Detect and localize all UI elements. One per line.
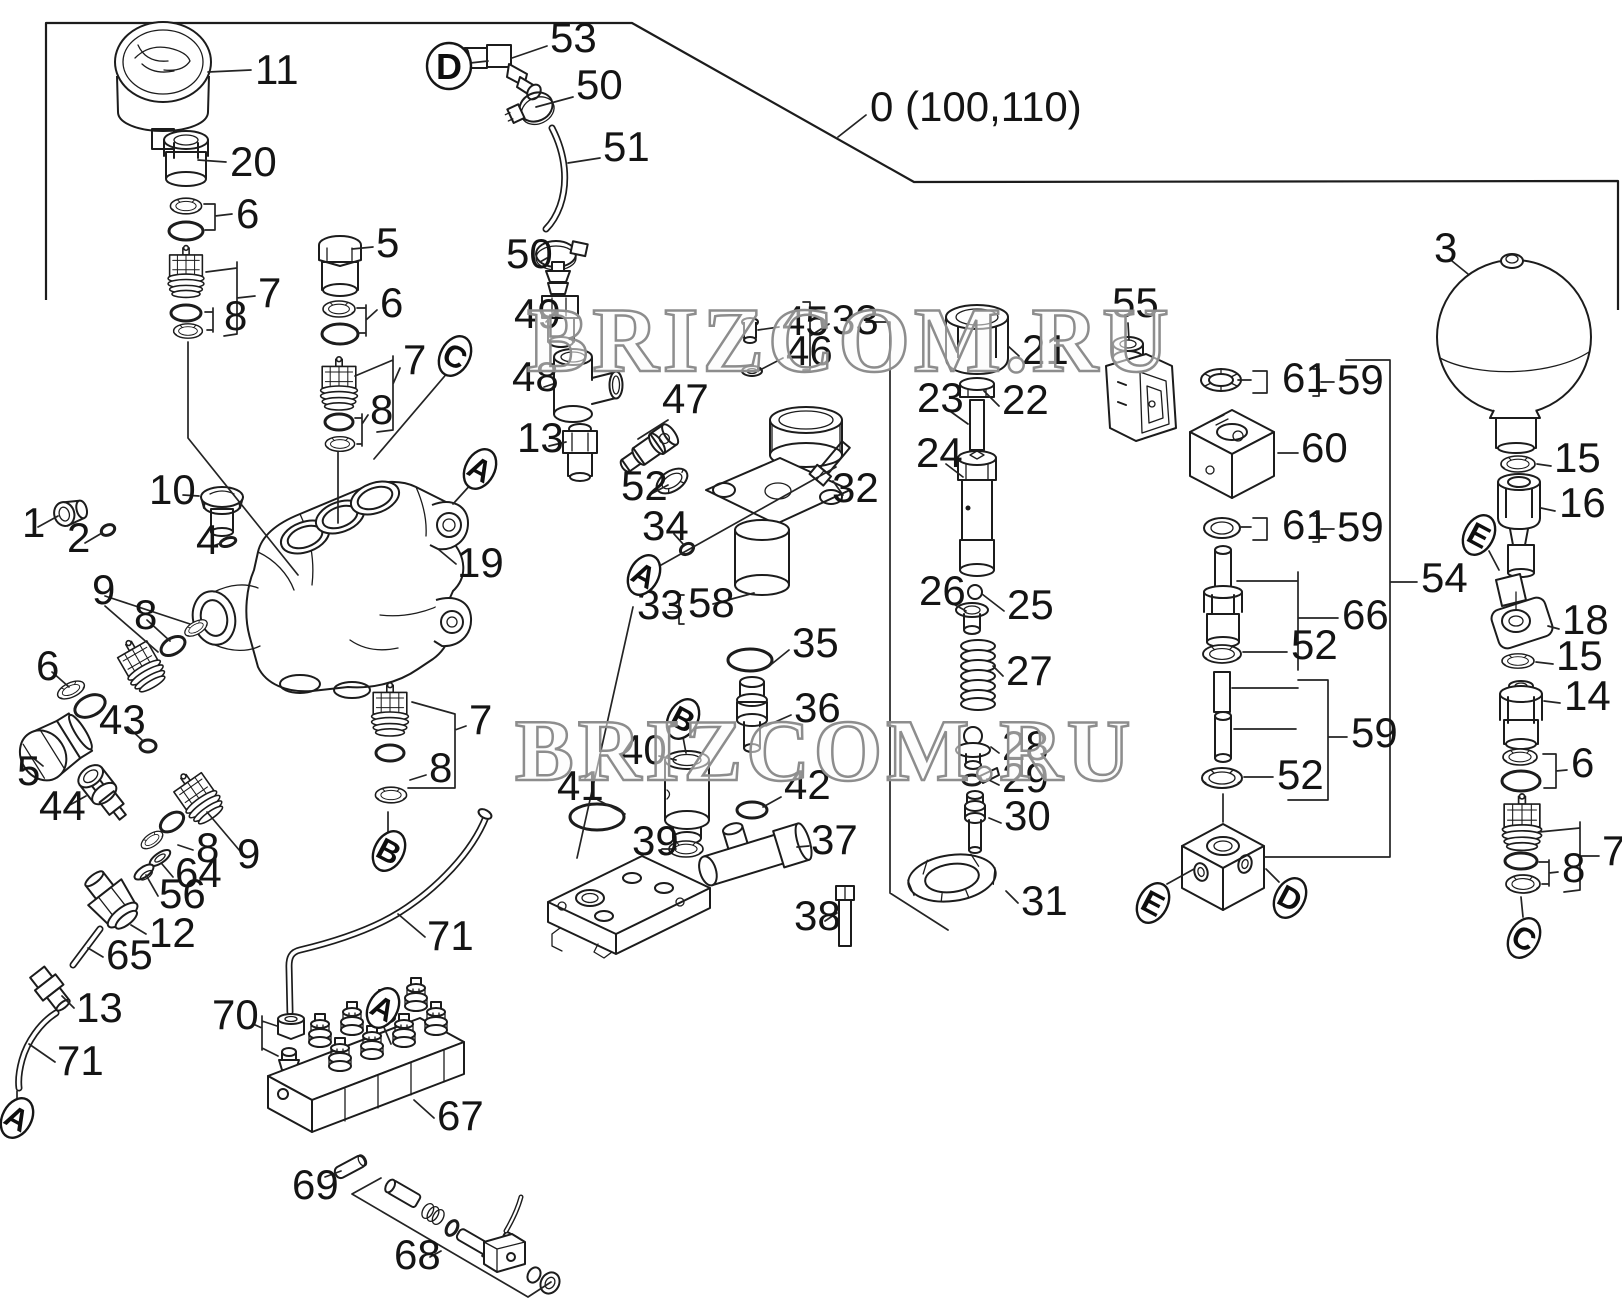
part-44-sensor-shape — [113, 807, 125, 820]
part-50-hose-clamp-shape — [571, 241, 588, 256]
part-label-71: 71 — [427, 912, 474, 959]
part-label-32: 32 — [832, 464, 879, 511]
part-3-accumulator-shape — [1490, 410, 1540, 418]
part-label-65: 65 — [106, 931, 153, 978]
part-label-67: 67 — [437, 1092, 484, 1139]
part-label-9: 9 — [92, 566, 115, 613]
watermark-layer: BRIZCOM.RUBRIZCOM.RU — [515, 289, 1173, 800]
part-35-oring — [728, 649, 772, 671]
part-19-pump-head-shape — [434, 598, 471, 646]
part-label-70: 70 — [212, 991, 259, 1038]
watermark: BRIZCOM.RU — [515, 703, 1134, 800]
part-33-threaded-port — [706, 407, 850, 524]
part-68-valve-kit-shape-shape — [484, 1234, 525, 1272]
part-label-0-100-110-: 0 (100,110) — [870, 83, 1082, 130]
part-8-washer — [1506, 875, 1540, 893]
part-33-base-plate — [548, 856, 710, 958]
exploded-parts-diagram: 0 (100,110)11206785678535051504948134752… — [0, 0, 1622, 1306]
part-7-valve — [372, 683, 409, 736]
part-67-oil-manifold-shape — [309, 1014, 331, 1047]
part-68-valve-kit-shape-shape — [425, 1205, 442, 1224]
callout-A: A — [457, 444, 502, 495]
part-label-7: 7 — [403, 336, 426, 383]
part-16-fitting-shape — [1498, 518, 1540, 529]
part-11-pressure-gauge-shape — [115, 22, 211, 102]
part-label-3: 3 — [1434, 224, 1457, 271]
part-16-fitting — [1498, 474, 1540, 529]
callout-D: D — [427, 43, 471, 89]
part-61-washer-shape — [1204, 518, 1240, 538]
part-68-valve-kit-shape — [419, 1202, 446, 1227]
part-15-washer — [1501, 456, 1535, 472]
part-6-ring — [323, 301, 355, 317]
part-9-valve — [167, 764, 228, 829]
part-label-35: 35 — [792, 619, 839, 666]
callout-A: A — [0, 1093, 40, 1144]
part-5-plug — [319, 236, 361, 296]
part-2-oring — [100, 523, 117, 538]
part-label-58: 58 — [688, 579, 735, 626]
part-8-oring — [376, 745, 404, 761]
part-70-fitting-shape — [278, 1014, 304, 1024]
part-label-16: 16 — [1559, 479, 1606, 526]
part-label-8: 8 — [224, 292, 247, 339]
part-14-fitting — [1500, 681, 1542, 749]
part-38-bolt-shape — [839, 900, 851, 946]
part-6-oring — [169, 222, 203, 240]
part-label-25: 25 — [1007, 581, 1054, 628]
part-58-cylinder — [735, 520, 789, 595]
part-stem-shape — [1510, 529, 1528, 545]
part-label-8: 8 — [134, 591, 157, 638]
part-label-10: 10 — [149, 466, 196, 513]
part-71-hose-long-shape — [477, 807, 493, 821]
part-label-52: 52 — [1291, 621, 1338, 668]
part-68-valve-kit-shape — [484, 1234, 525, 1272]
part-3-accumulator-shape — [1437, 260, 1591, 414]
watermark: BRIZCOM.RU — [527, 289, 1173, 391]
part-label-38: 38 — [794, 892, 841, 939]
part-68-valve-kit-shape-shape — [419, 1202, 436, 1221]
part-label-15: 15 — [1554, 434, 1601, 481]
part-15-washer — [1502, 654, 1534, 668]
part-30-stem — [965, 791, 985, 853]
part-27-spring — [961, 640, 995, 710]
part-9-valve — [111, 632, 169, 696]
part-label-71: 71 — [57, 1037, 104, 1084]
part-label-44: 44 — [39, 782, 86, 829]
part-14-fitting-shape — [1500, 686, 1542, 702]
part-7-valve — [168, 246, 204, 298]
part-67-oil-manifold-shape — [341, 1002, 363, 1035]
part-67-oil-manifold — [268, 978, 464, 1132]
part-label-39: 39 — [632, 817, 679, 864]
part-58-cylinder-shape — [735, 575, 789, 595]
part-67-oil-manifold-shape — [425, 1002, 447, 1035]
part-14-fitting-shape — [1506, 739, 1536, 749]
part-67-oil-manifold-shape — [361, 1026, 383, 1059]
part-3-accumulator — [1437, 254, 1591, 453]
part-30-stem-shape — [969, 820, 981, 850]
part-8-washer — [375, 787, 406, 803]
part-6-oring — [322, 324, 358, 344]
part-label-52: 52 — [1277, 751, 1324, 798]
part-label-19: 19 — [457, 539, 504, 586]
part-label-59: 59 — [1351, 709, 1398, 756]
part-label-8: 8 — [429, 744, 452, 791]
part-50-hose-clamp-shape — [517, 92, 559, 130]
part-42-oring — [737, 802, 767, 818]
part-6-ring — [1503, 749, 1537, 765]
part-53-elbow-fitting-shape — [487, 45, 511, 67]
part-59-plunger-pin — [1215, 712, 1231, 762]
part-label-68: 68 — [394, 1231, 441, 1278]
part-label-66: 66 — [1342, 591, 1389, 638]
part-label-6: 6 — [1571, 739, 1594, 786]
part-8-oring — [1505, 853, 1537, 869]
part-3-accumulator-shape — [1498, 443, 1534, 453]
part-30-stem-shape — [965, 801, 985, 811]
part-label-54: 54 — [1421, 554, 1468, 601]
part-label-43: 43 — [99, 696, 146, 743]
part-59-spring — [1214, 672, 1230, 712]
part-65-tube-shape — [73, 929, 100, 965]
callout-D: D — [1267, 873, 1312, 924]
part-5-big-plug-shape — [66, 712, 96, 751]
part-60-solenoid-coil — [1190, 410, 1274, 498]
part-36-piston-shape — [740, 677, 764, 687]
part-label-6: 6 — [36, 642, 59, 689]
part-20-fitting — [164, 131, 208, 186]
part-13-fitting — [27, 964, 75, 1015]
part-12-fitting-shape — [83, 869, 105, 889]
part-label-27: 27 — [1006, 647, 1053, 694]
part-label-61: 61 — [1282, 501, 1329, 548]
part-label-11: 11 — [255, 46, 299, 93]
part-13-fitting-shape — [570, 473, 590, 481]
part-24-valve-body-shape — [966, 506, 971, 511]
part-7-valve — [321, 357, 358, 410]
part-label-6: 6 — [380, 279, 403, 326]
part-30-stem-shape — [969, 847, 981, 853]
part-label-26: 26 — [919, 567, 966, 614]
part-24-valve-body — [958, 451, 996, 576]
part-33-base-plate-shape — [552, 928, 612, 958]
part-20-fitting-shape — [166, 172, 206, 186]
part-label-7: 7 — [469, 696, 492, 743]
part-66-armature-shape — [1215, 546, 1231, 554]
callout-E: E — [1456, 510, 1501, 561]
part-52-washer — [1203, 645, 1241, 663]
part-66-armature — [1204, 546, 1242, 647]
part-20-fitting-shape — [164, 131, 208, 149]
part-label-7: 7 — [1602, 827, 1622, 874]
part-52-washer — [1202, 768, 1242, 788]
callout-C: C — [432, 331, 477, 382]
part-24-valve-body-shape — [958, 451, 996, 465]
part-5-plug-shape — [323, 284, 357, 296]
part-label-2: 2 — [67, 514, 90, 561]
part-label-8: 8 — [370, 386, 393, 433]
part-label-14: 14 — [1564, 672, 1611, 719]
part-label-13: 13 — [76, 984, 123, 1031]
callout-E: E — [1130, 878, 1175, 929]
part-31-ring-nut — [905, 849, 999, 907]
part-37-manifold-pipe-shape — [722, 821, 744, 836]
part-56-cone-washer — [132, 862, 157, 884]
part-66-armature-shape — [1204, 586, 1242, 598]
part-8-washer — [325, 437, 354, 452]
part-4-oring — [219, 536, 237, 549]
part-label-12: 12 — [149, 909, 196, 956]
part-65-tube — [73, 929, 100, 965]
part-67-oil-manifold-shape — [405, 978, 427, 1011]
part-label-69: 69 — [292, 1161, 339, 1208]
part-6-ring — [170, 198, 201, 214]
part-label-4: 4 — [196, 516, 219, 563]
part-51-hose — [546, 128, 565, 229]
part-6-oring — [1502, 771, 1540, 791]
part-label-59: 59 — [1337, 356, 1384, 403]
part-49-barb-fitting-shape — [552, 262, 564, 271]
part-label-37: 37 — [811, 816, 858, 863]
part-10-plug-shape — [201, 487, 243, 507]
part-label-24: 24 — [916, 429, 963, 476]
part-19-pump-head-shape-shape — [188, 587, 240, 649]
part-19-pump-head-shape — [188, 587, 240, 649]
part-3-accumulator-shape — [1501, 254, 1523, 268]
part-68-valve-kit-shape — [383, 1178, 421, 1208]
callout-B: B — [366, 826, 411, 877]
part-18-banjo-elbow — [1489, 574, 1555, 651]
part-8-oring — [158, 633, 189, 660]
callout-C: C — [1501, 913, 1546, 964]
part-label-59: 59 — [1337, 503, 1384, 550]
part-59-plunger-pin-shape — [1215, 712, 1231, 720]
part-8-oring — [325, 414, 353, 430]
part-label-31: 31 — [1021, 877, 1068, 924]
part-8-washer — [174, 324, 203, 338]
part-label-50: 50 — [506, 230, 553, 277]
part-label-20: 20 — [230, 138, 277, 185]
part-68-valve-kit-shape-shape — [430, 1208, 447, 1227]
part-label-5: 5 — [376, 219, 399, 266]
part-67-oil-manifold-shape — [329, 1038, 351, 1071]
part-13-fitting — [563, 424, 597, 481]
part-67-oil-manifold-shape — [393, 1014, 415, 1047]
part-70-fitting-shape — [282, 1048, 296, 1056]
part-11-pressure-gauge — [115, 22, 211, 149]
part-label-53: 53 — [550, 14, 597, 61]
part-label-9: 9 — [237, 830, 260, 877]
part-label-8: 8 — [1562, 844, 1585, 891]
part-61-star-washer — [1201, 369, 1241, 391]
part-label-60: 60 — [1301, 424, 1348, 471]
part-59-plunger-pin-shape — [1215, 716, 1231, 758]
part-8-oring — [171, 305, 201, 321]
part-13-fitting-shape — [563, 431, 597, 453]
part-33-base-plate-shape — [548, 856, 710, 934]
part-label-5: 5 — [17, 747, 40, 794]
part-label-1: 1 — [22, 499, 45, 546]
callout-D-shape: D — [436, 46, 462, 87]
part-7-valve — [1502, 794, 1541, 851]
part-25-ball — [968, 585, 982, 599]
part-26-seat-shape — [964, 626, 980, 634]
part-label-50: 50 — [576, 61, 623, 108]
part-58-cylinder-shape — [735, 520, 789, 540]
part-label-34: 34 — [642, 502, 689, 549]
part-valve-cube — [1182, 824, 1264, 910]
part-label-7: 7 — [258, 269, 281, 316]
part-label-13: 13 — [517, 414, 564, 461]
part-61-washer — [1204, 518, 1240, 538]
part-stem — [1508, 529, 1534, 577]
part-label-61: 61 — [1282, 354, 1329, 401]
part-label-51: 51 — [603, 123, 650, 170]
diagram-page: 0 (100,110)11206785678535051504948134752… — [0, 0, 1622, 1306]
part-59-plunger-pin-shape — [1215, 754, 1231, 762]
part-23-threaded-rod — [970, 400, 984, 450]
part-label-6: 6 — [236, 190, 259, 237]
